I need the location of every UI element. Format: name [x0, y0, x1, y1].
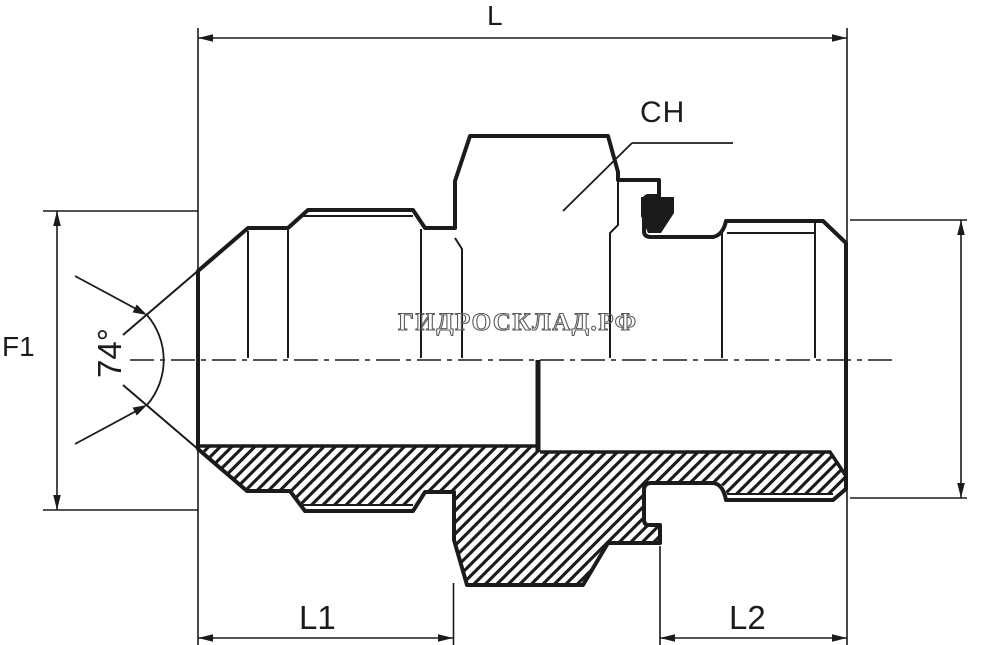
- dim-F1-arrow-top: [53, 211, 61, 226]
- label-cone-angle: 74°: [93, 317, 131, 389]
- label-total-length: L: [487, 2, 503, 30]
- angle-arrow-top: [133, 305, 147, 316]
- shoulder-seal-symbol: [622, 180, 674, 233]
- dim-L2-arrow-left: [660, 634, 675, 642]
- label-left-length: L1: [299, 601, 336, 634]
- dim-L-arrow-right: [832, 34, 847, 42]
- dim-right-arrow-bottom: [957, 483, 965, 498]
- section-hatch-area: [198, 446, 846, 585]
- label-flare-diameter: F1: [2, 333, 35, 361]
- dim-F1-arrow-bottom: [53, 495, 61, 510]
- dim-right-arrow-top: [957, 220, 965, 235]
- label-hex-size: CH: [640, 98, 685, 128]
- technical-drawing-canvas: L CH F1 74° L1 L2 ГИДРОСКЛАД.РФ: [0, 0, 1004, 645]
- watermark-text: ГИДРОСКЛАД.РФ: [398, 310, 608, 338]
- dim-right-thread-diameter: [850, 220, 967, 498]
- dim-L1-arrow-left: [198, 634, 213, 642]
- dim-L-arrow-left: [198, 34, 213, 42]
- dim-L2-arrow-right: [832, 634, 847, 642]
- label-right-length: L2: [729, 601, 766, 634]
- angle-arrow-bottom: [133, 405, 147, 416]
- dim-L1-arrow-right: [438, 634, 453, 642]
